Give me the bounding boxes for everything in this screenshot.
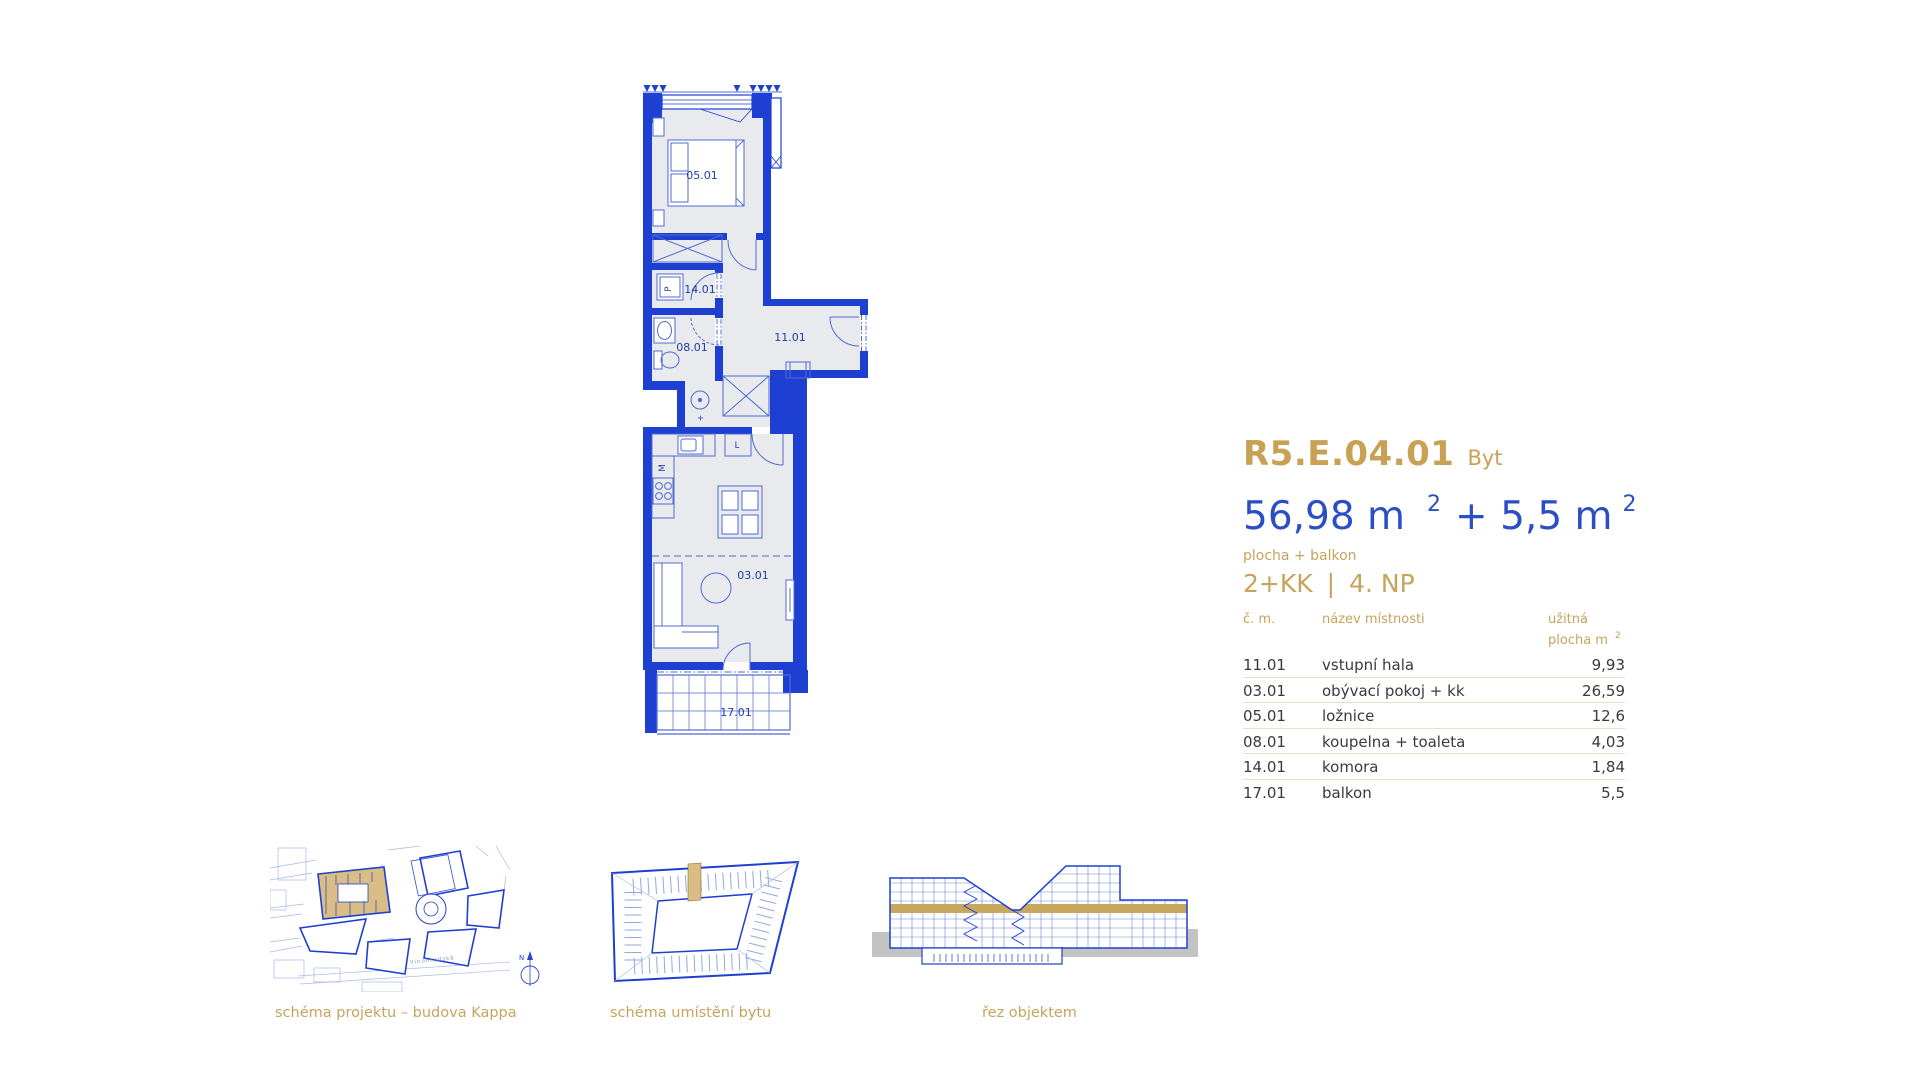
room-table-header: č. m. název místnosti užitná plocha m2 — [1243, 612, 1625, 652]
unit-location-schematic — [600, 853, 812, 991]
balcony — [657, 672, 790, 734]
table-row: 11.01 vstupní hala 9,93 — [1243, 652, 1625, 678]
room-table: č. m. název místnosti užitná plocha m2 1… — [1243, 612, 1625, 804]
dishwasher-label: M — [658, 464, 668, 471]
header-room-name: název místnosti — [1322, 612, 1425, 627]
north-needle — [527, 951, 533, 960]
fridge-label: L — [735, 441, 740, 451]
dimension-ticks — [643, 85, 782, 92]
table-row: 05.01 ložnice 12,6 — [1243, 703, 1625, 729]
unit-type-label: Byt — [1467, 446, 1502, 470]
area-balcony-value: + 5,5 m — [1455, 494, 1613, 539]
building-section-schematic — [872, 852, 1198, 986]
header-room-area: užitná plocha m2 — [1548, 612, 1621, 649]
unit-code: R5.E.04.01 — [1243, 434, 1454, 474]
header-area-sup: 2 — [1615, 631, 1621, 641]
room-label-balcony: 17.01 — [720, 706, 752, 719]
area-main-value: 56,98 m — [1243, 494, 1405, 539]
floor-level: 4. NP — [1349, 569, 1415, 598]
highlighted-unit — [688, 863, 701, 901]
disposition-row: 2+KK|4. NP — [1243, 569, 1663, 599]
north-label: N — [519, 954, 524, 962]
kappa-building-highlight — [318, 867, 390, 919]
table-row: 14.01 komora 1,84 — [1243, 754, 1625, 780]
header-room-number: č. m. — [1243, 612, 1275, 627]
site-plan-schematic: Vinohradská — [270, 846, 510, 992]
disposition-separator: | — [1327, 569, 1335, 598]
unit-location-caption: schéma umístění bytu — [610, 1005, 771, 1021]
page: 05.01 P 14.01 08.01 — [0, 0, 1920, 1080]
disposition: 2+KK — [1243, 569, 1313, 598]
area-main-sup: 2 — [1427, 492, 1441, 517]
unit-area-row: 56,98 m2+ 5,5 m2 — [1243, 482, 1663, 547]
room-label-bathroom: 08.01 — [676, 341, 708, 354]
floor-plan: 05.01 P 14.01 08.01 — [640, 78, 872, 738]
room-label-bedroom: 05.01 — [686, 169, 718, 182]
table-row: 03.01 obývací pokoj + kk 26,59 — [1243, 678, 1625, 704]
courtyard — [652, 894, 752, 953]
floor-highlight-band — [890, 904, 1187, 913]
room-label-storage: 14.01 — [684, 283, 716, 296]
room-label-hall: 11.01 — [774, 331, 806, 344]
table-row: 08.01 koupelna + toaleta 4,03 — [1243, 729, 1625, 755]
basement — [922, 948, 1062, 964]
room-label-living: 03.01 — [737, 569, 769, 582]
building-section-caption: řez objektem — [982, 1005, 1077, 1021]
unit-info: R5.E.04.01Byt 56,98 m2+ 5,5 m2 plocha + … — [1243, 432, 1663, 599]
unit-title-row: R5.E.04.01Byt — [1243, 432, 1663, 482]
area-note: plocha + balkon — [1243, 548, 1663, 564]
exterior-stub — [771, 98, 781, 168]
washer-label: P — [664, 286, 674, 291]
area-balcony-sup: 2 — [1623, 492, 1637, 517]
site-plan-caption: schéma projektu – budova Kappa — [275, 1005, 517, 1021]
table-row: 17.01 balkon 5,5 — [1243, 780, 1625, 805]
compass: N — [516, 948, 542, 990]
